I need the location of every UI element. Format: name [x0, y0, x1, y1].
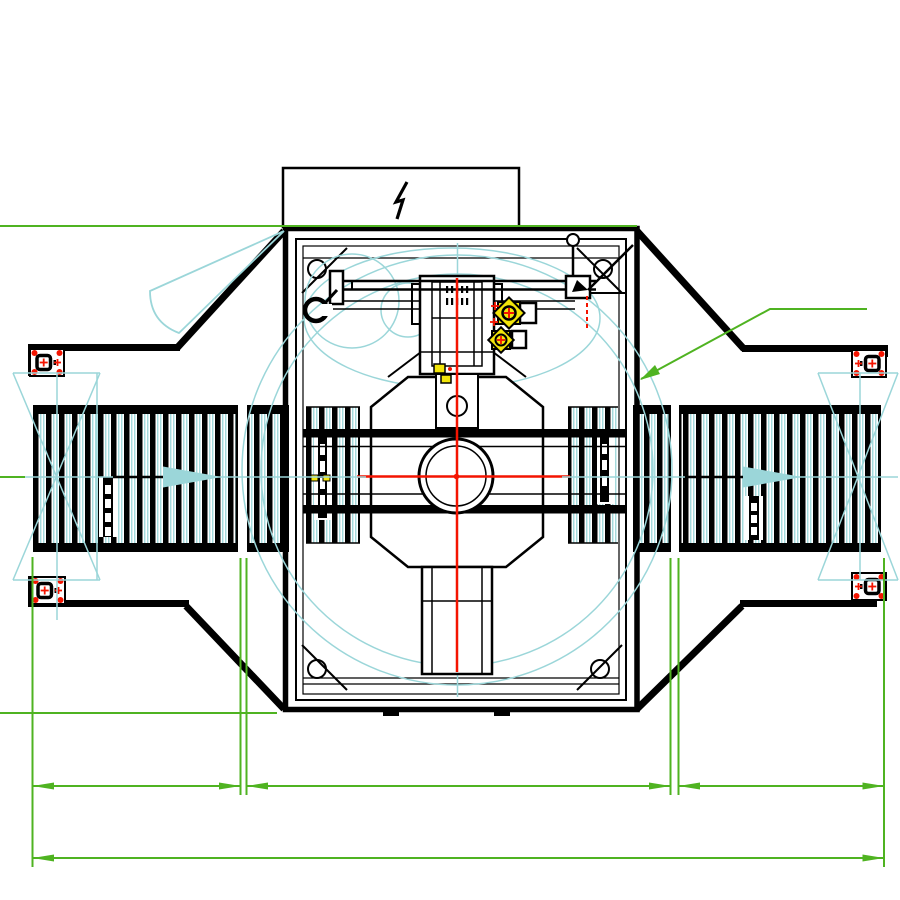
arm-end-hook — [305, 290, 337, 321]
yellow-fitting-icon — [434, 364, 445, 373]
yellow-fitting-icon — [323, 475, 330, 481]
gear-large-icon — [493, 297, 524, 328]
dimension-row-2 — [33, 855, 885, 862]
swing-arc-fan — [150, 231, 284, 333]
leader-line — [640, 309, 867, 380]
cad-drawing — [0, 0, 900, 900]
electrical-box — [283, 168, 519, 227]
dimension-row-1 — [33, 783, 885, 790]
corner-block-bottom-right — [852, 573, 886, 600]
drawing-canvas — [0, 0, 900, 900]
right-conveyor-chain-detail — [745, 496, 763, 540]
corner-block-bottom-left — [31, 577, 65, 604]
gear-small-icon — [488, 327, 513, 352]
corner-block-top-left — [30, 349, 64, 376]
yellow-fitting-icon — [441, 375, 451, 383]
yellow-fitting-icon — [311, 475, 318, 481]
left-conveyor-chain-detail — [99, 477, 117, 537]
